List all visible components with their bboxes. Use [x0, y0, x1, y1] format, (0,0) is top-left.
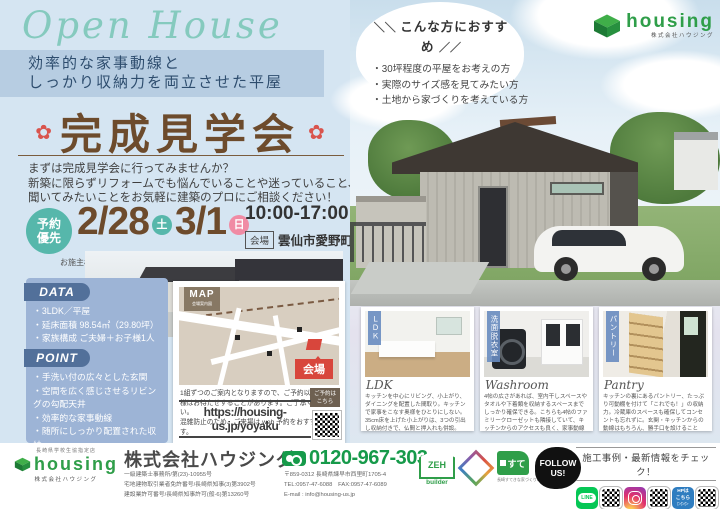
point-item: 効率的な家事動線	[33, 412, 163, 426]
intro-line2: 新築に限らずリフォームでも悩んでいることや迷っていること、	[28, 177, 359, 192]
open-house-script-title: Open House	[22, 4, 302, 47]
map-ribbon: MAP 会場案内図	[184, 287, 220, 311]
venue-tag: 会場	[295, 359, 333, 379]
interior-cards: ＬＤＫ LDK キッチンを中心にリビング、小上がり、ダイニングを配置した間取り。…	[361, 307, 712, 431]
data-item: 家族構成 ご夫婦＋お子様1人	[33, 332, 163, 346]
flower-icon: ✿	[308, 122, 325, 144]
ldk-photo: ＬＤＫ	[365, 311, 470, 377]
sns-section: 施工事例・最新情報をチェック！ LINE HPは こちら ▷▷▷	[576, 447, 716, 509]
tagline-band: 効率的な家事動線と しっかり収納力を両立させた平屋	[0, 50, 324, 97]
reservation-priority-badge: 予約 優先	[26, 208, 72, 254]
reservation-url[interactable]: https://housing-us.jp/yoyaku	[179, 400, 311, 438]
date-mar1: 3/1	[175, 200, 226, 243]
title-underline	[18, 155, 344, 156]
cabinet-shape	[541, 319, 583, 365]
saturday-badge: 土	[152, 215, 172, 235]
venue-map: MAP 会場案内図 会場	[179, 287, 339, 385]
window-shape	[550, 182, 604, 195]
map-road	[273, 315, 290, 385]
recommend-bubble: ＼＼ こんな方におすすめ ／／ 30坪程度の平屋をお考えの方 実際のサイズ感を見…	[356, 2, 524, 106]
map-card: MAP 会場案内図 会場 1組ずつのご案内となりますので、ご予約以外のお客 様は…	[173, 281, 345, 443]
sute-badge: すて 長崎すてきな家づくりの会	[497, 451, 531, 483]
venue-label: 会場	[245, 231, 274, 249]
check-info-title: 施工事例・最新情報をチェック！	[576, 447, 716, 481]
interior-card-pantry: パントリー Pantry キッチンの裏にあるパントリー、たっぷり可動棚を付けて「…	[599, 307, 712, 431]
company-name: 株式会社ハウジング	[124, 446, 295, 472]
follow-us-bubble: FOLLOW US!	[535, 447, 581, 489]
flower-icon: ✿	[35, 122, 52, 144]
tagline-line2: しっかり収納力を両立させた平屋	[28, 74, 324, 93]
intro-paragraph: まずは完成見学会に行ってみませんか？ 新築に限らずリフォームでも悩んでいることや…	[28, 162, 359, 206]
kitchen-counter-shape	[379, 341, 435, 357]
ldk-caption: LDK	[366, 378, 470, 392]
wheel-shape	[554, 257, 578, 281]
car-shape	[534, 226, 684, 272]
decor-slash-left: ＼＼	[374, 22, 396, 34]
tagline-line1: 効率的な家事動線と	[28, 55, 324, 74]
pantry-caption: Pantry	[604, 378, 708, 392]
instagram-icon[interactable]	[624, 487, 646, 509]
brand-name: housing	[626, 12, 714, 31]
data-item: 3LDK／平屋	[33, 305, 163, 319]
venue-site-marker	[306, 339, 322, 350]
housing-cube-icon	[14, 454, 31, 475]
date-feb28: 2/28	[77, 200, 149, 243]
washroom-caption: Washroom	[485, 378, 589, 392]
footer-logo-sub: 株式会社ハウジング	[14, 475, 118, 483]
terrace-shape	[351, 262, 489, 294]
recommend-item: 実際のサイズ感を見てみたい方	[372, 78, 510, 94]
flyer-root: Open House 効率的な家事動線と しっかり収納力を両立させた平屋 ✿完成…	[0, 0, 720, 509]
sns-row: LINE HPは こちら ▷▷▷	[576, 487, 716, 509]
pantry-shelf-shape	[629, 313, 663, 377]
point-item: 手洗い付の広々とした玄関	[33, 371, 163, 385]
recommend-title-row: ＼＼ こんな方におすすめ ／／	[372, 16, 510, 56]
venue-name: 雲仙市愛野町	[278, 230, 353, 249]
footer-logo-caption: 長崎県学校生協指定店	[14, 447, 118, 454]
sute-badge-icon: すて	[497, 451, 529, 475]
map-landmark	[297, 327, 302, 332]
zeh-house-icon: ZEH	[419, 449, 455, 479]
house-render	[350, 94, 720, 306]
footer-brand-logo: 長崎県学校生協指定店 housing 株式会社ハウジング	[14, 447, 118, 483]
brand-subtitle: 株式会社ハウジング	[626, 31, 714, 39]
line-icon[interactable]: LINE	[576, 487, 598, 509]
footer-logo-name: housing	[34, 454, 118, 475]
doorway-shape	[680, 311, 706, 377]
distant-house-shape	[674, 132, 718, 190]
email: E-mail : info@housing-us.jp	[284, 491, 387, 501]
homepage-badge[interactable]: HPは こちら ▷▷▷	[672, 487, 694, 509]
window-shape	[436, 317, 462, 335]
point-tab: POINT	[24, 349, 90, 367]
data-list: 3LDK／平屋 延床面積 98.54㎡（29.80坪） 家族構成 ご夫婦＋お子様…	[26, 301, 168, 349]
decor-slash-right: ／／	[439, 42, 461, 54]
data-item: 延床面積 98.54㎡（29.80坪）	[33, 319, 163, 333]
intro-line1: まずは完成見学会に行ってみませんか？	[28, 162, 359, 177]
phone-row: 0120-967-303	[282, 447, 428, 470]
time-venue-block: 10:00-17:00 会場 雲仙市愛野町	[245, 203, 360, 249]
postal-address: 〒859-0312 長崎県諫早市西里町1705-4	[284, 471, 387, 481]
left-column: Open House 効率的な家事動線と しっかり収納力を両立させた平屋 ✿完成…	[0, 0, 360, 443]
certification-diamond-badge	[458, 450, 495, 487]
footer: 長崎県学校生協指定店 housing 株式会社ハウジング 株式会社ハウジング 一…	[0, 443, 720, 509]
pantry-description: キッチンの裏にあるパントリー、たっぷり可動棚を付けて「これでも！」の収納力。冷蔵…	[603, 393, 708, 431]
right-column: ＼＼ こんな方におすすめ ／／ 30坪程度の平屋をお考えの方 実際のサイズ感を見…	[350, 0, 720, 443]
homepage-qr-code[interactable]	[696, 487, 718, 509]
washroom-ribbon: 洗面脱衣室	[487, 311, 500, 362]
interior-card-ldk: ＬＤＫ LDK キッチンを中心にリビング、小上がり、ダイニングを配置した間取り。…	[361, 307, 474, 431]
event-title-row: ✿完成見学会✿	[0, 101, 360, 162]
instagram-qr-code[interactable]	[648, 487, 670, 509]
pantry-photo: パントリー	[603, 311, 708, 377]
recommend-item: 30坪程度の平屋をお考えの方	[372, 62, 510, 78]
license-lines: 一級建築士事務所/第(23)-10955号 宅地建物取引業者免許番号/長崎県知事…	[124, 470, 256, 500]
open-hours: 10:00-17:00	[245, 203, 360, 225]
zeh-builder-badge: ZEH builder	[417, 449, 457, 486]
map-landmark	[267, 351, 272, 356]
address-block: 〒859-0312 長崎県諫早市西里町1705-4 TEL:0957-47-60…	[284, 471, 387, 501]
reservation-qr-code[interactable]	[313, 411, 341, 439]
point-item: 空間を広く感じさせるリビングの勾配天井	[33, 385, 163, 412]
washroom-description: 4帖の広さがあれば、室内干しスペースやタオルや下着類を収納するスペースまでしっか…	[484, 393, 589, 431]
tel-fax: TEL:0957-47-6088 FAX:0957-47-6089	[284, 481, 387, 491]
washroom-photo: 洗面脱衣室	[484, 311, 589, 377]
phone-number[interactable]: 0120-967-303	[309, 447, 428, 470]
sute-badge-caption: 長崎すてきな家づくりの会	[497, 477, 531, 483]
event-dates: 2/28土3/1日	[77, 200, 252, 244]
event-title: 完成見学会	[60, 113, 300, 159]
ldk-description: キッチンを中心にリビング、小上がり、ダイニングを配置した間取り。キッチンで家事を…	[365, 393, 470, 431]
data-point-panel: DATA 3LDK／平屋 延床面積 98.54㎡（29.80坪） 家族構成 ご夫…	[26, 278, 168, 443]
fence-shape	[350, 222, 426, 262]
line-qr-code[interactable]	[600, 487, 622, 509]
entrance-door-shape	[478, 186, 508, 268]
brand-logo: housing 株式会社ハウジング	[592, 12, 714, 39]
map-landmark	[235, 335, 240, 340]
freedial-icon	[282, 451, 306, 466]
ldk-ribbon: ＬＤＫ	[368, 311, 381, 345]
wheel-shape	[642, 257, 666, 281]
pantry-ribbon: パントリー	[606, 311, 619, 362]
reserve-here-badge[interactable]: ご予約は こちら	[310, 388, 340, 407]
housing-cube-icon	[592, 13, 622, 39]
roof-shape	[235, 259, 343, 281]
interior-card-washroom: 洗面脱衣室 Washroom 4帖の広さがあれば、室内干しスペースやタオルや下着…	[480, 307, 593, 431]
data-tab: DATA	[24, 283, 90, 301]
